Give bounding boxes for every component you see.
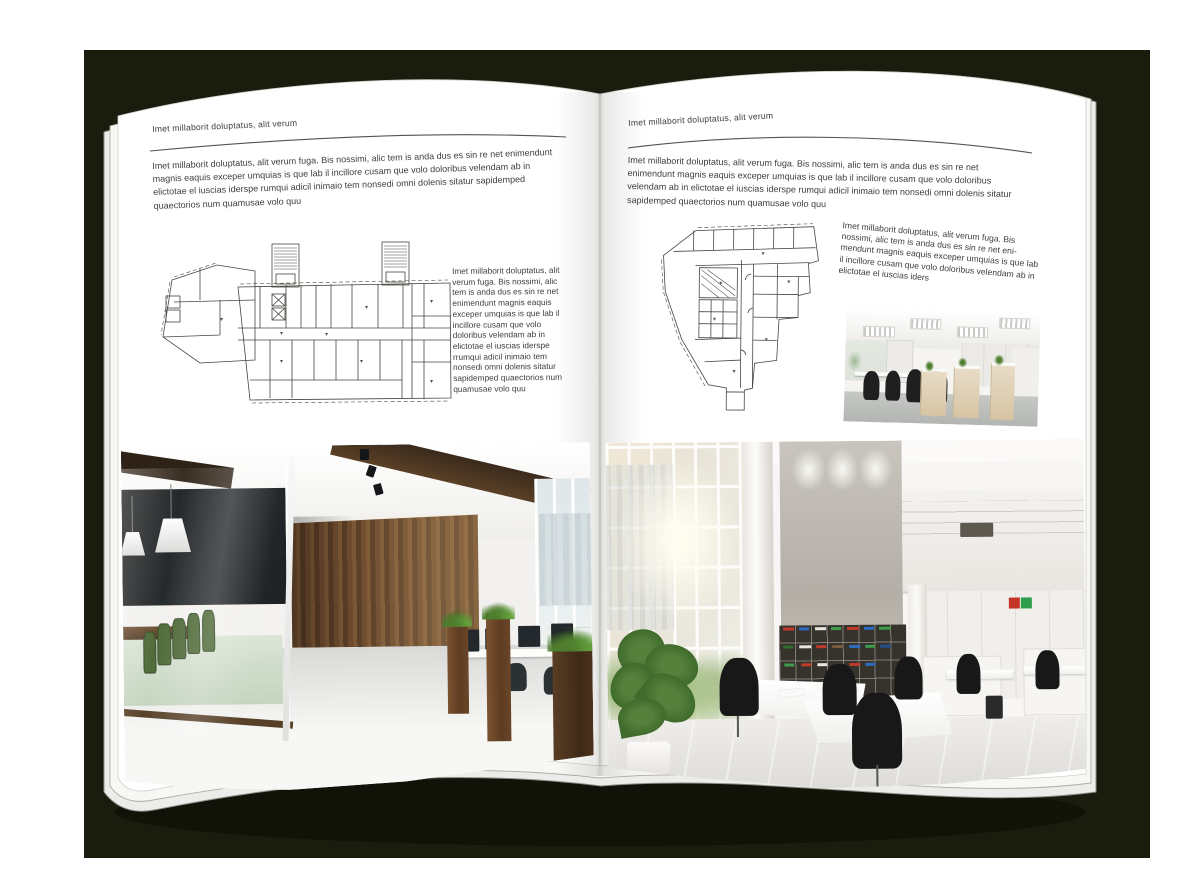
monitor	[518, 626, 541, 648]
ceiling-light	[863, 326, 894, 338]
binders-red	[783, 628, 794, 631]
wood-cabinet	[919, 369, 947, 416]
black-mesh-chair	[720, 658, 759, 716]
binders-red	[849, 663, 860, 666]
right-page-photo-tall-office	[605, 439, 1086, 803]
binders-blue	[849, 645, 860, 648]
sun-glare	[615, 456, 741, 623]
chair-stem	[876, 765, 878, 790]
right-page-photo-small-office	[843, 307, 1040, 426]
chair-stem	[737, 716, 739, 738]
right-page-intro: Imet millaborit doluptatus, alit verum f…	[627, 154, 1020, 215]
glass-partition	[121, 467, 290, 732]
binders-brown	[832, 645, 842, 648]
black-chair	[1035, 650, 1059, 690]
binders-red	[848, 627, 859, 630]
glass-railing	[902, 500, 1084, 534]
city-view	[539, 513, 592, 606]
binders-blue	[866, 663, 876, 666]
planter-grass	[548, 627, 595, 652]
ceiling-light	[956, 326, 987, 338]
wood-planter	[486, 614, 511, 742]
wood-cabinet	[952, 365, 980, 418]
floor-plan-left	[160, 240, 452, 413]
binders-green	[865, 645, 875, 648]
corridor	[1011, 348, 1039, 397]
safety-sign-green	[1021, 598, 1033, 609]
planter-grass	[482, 601, 515, 619]
left-page-photo-loft-office	[121, 442, 594, 803]
small-plant	[924, 361, 934, 372]
black-mesh-chair	[894, 656, 923, 699]
binders-green	[879, 627, 890, 630]
small-plant	[994, 355, 1004, 366]
black-mesh-chair	[822, 664, 856, 715]
binders-white	[815, 628, 826, 631]
small-plant	[958, 357, 968, 368]
black-chair	[956, 654, 980, 694]
black-mesh-chair-foreground	[851, 693, 902, 769]
wall-spotlight-glow	[792, 448, 826, 491]
plant-wall-hint	[847, 351, 863, 372]
track-spotlight	[360, 448, 369, 459]
planter-grass	[442, 609, 473, 627]
left-page-side-text: Imet millaborit doluptatus, alit verum f…	[452, 265, 565, 395]
wood-cabinet	[989, 363, 1015, 420]
floor-plan-right	[648, 219, 822, 416]
binders-navy	[881, 645, 891, 648]
binders-green	[831, 628, 841, 631]
black-chair	[885, 370, 901, 401]
glass-meeting-room	[121, 467, 288, 732]
binders-blue	[799, 628, 809, 631]
binders-red	[816, 646, 826, 649]
safety-sign-red	[1008, 598, 1020, 609]
binders-red	[801, 664, 811, 667]
binders-blue	[864, 627, 874, 630]
ceiling-light	[999, 317, 1030, 329]
ceiling-light	[910, 318, 941, 330]
binders-white	[817, 664, 827, 667]
wall-spotlight-glow	[859, 448, 893, 491]
black-chair	[863, 371, 879, 401]
air-vent	[960, 523, 994, 538]
wood-planter	[447, 621, 469, 714]
mockup-canvas: Imet millaborit doluptatus, alit verum I…	[0, 0, 1200, 891]
waste-bin	[985, 695, 1002, 719]
binders-darkgreen	[783, 646, 793, 649]
binders-white	[800, 646, 811, 649]
binders-green	[785, 664, 795, 667]
wall-spotlight-glow	[825, 448, 859, 491]
